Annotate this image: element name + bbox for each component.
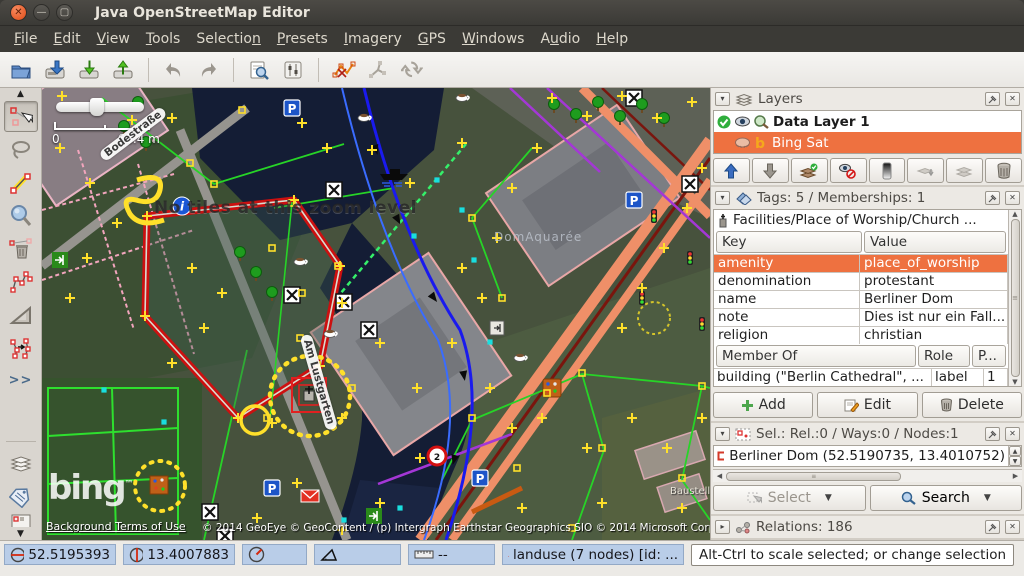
layers-panel: ▾ Layers ✕ Data Layer 1 b Bing Sat — [711, 88, 1024, 187]
layer-row-bing-sat[interactable]: b Bing Sat — [714, 132, 1021, 153]
tool-draw-node[interactable] — [4, 167, 38, 198]
selection-hscrollbar[interactable]: ◀ ≡ ▶ — [713, 469, 1022, 482]
tools-scroll-down-icon[interactable]: ▼ — [3, 528, 39, 540]
terms-of-use-link[interactable]: Background Terms of Use — [46, 520, 186, 533]
relations-panel: ▸ Relations: 186 ✕ — [711, 516, 1024, 540]
member-of-column-header[interactable]: Member Of — [716, 345, 916, 367]
menu-tools[interactable]: Tools — [138, 28, 189, 50]
svg-text:2: 2 — [434, 453, 440, 463]
key-column-header[interactable]: Key — [716, 231, 862, 253]
right-dock: ▾ Layers ✕ Data Layer 1 b Bing Sat — [710, 88, 1024, 540]
object-cursor-icon — [508, 547, 509, 562]
compass-icon — [248, 546, 265, 563]
active-layer-check-icon — [717, 115, 731, 129]
selection-panel-title: Sel.: Rel.:0 / Ways:0 / Nodes:1 — [756, 426, 980, 442]
relations-close-icon[interactable]: ✕ — [1005, 520, 1020, 534]
hovered-object-field: landuse (7 nodes) [id: ... — [502, 544, 684, 565]
scale-zero: 0 — [52, 132, 60, 146]
activate-layer-icon[interactable] — [791, 158, 828, 183]
layer-name: Data Layer 1 — [773, 114, 870, 130]
save-icon[interactable] — [40, 56, 70, 84]
menu-gps[interactable]: GPS — [410, 28, 454, 50]
value-column-header[interactable]: Value — [864, 231, 1006, 253]
tag-row[interactable]: nameBerliner Dom — [714, 290, 1008, 308]
edit-tag-button[interactable]: Edit — [817, 392, 917, 418]
imagery-copyright: © 2014 GeoEye © GeoContent / (p) Intergr… — [202, 522, 710, 534]
layers-collapse-icon[interactable]: ▾ — [715, 92, 730, 106]
undo-icon[interactable] — [159, 56, 189, 84]
relations-expand-icon[interactable]: ▸ — [715, 520, 730, 534]
upload-icon[interactable] — [108, 56, 138, 84]
duplicate-layer-icon[interactable] — [946, 158, 983, 183]
construction-label: Baustelle — [670, 486, 710, 497]
select-button[interactable]: Select ▼ — [713, 485, 866, 511]
add-tag-button[interactable]: Add — [713, 392, 813, 418]
split-way-icon[interactable] — [363, 56, 393, 84]
delete-layer-icon[interactable] — [985, 158, 1022, 183]
tools-more-button[interactable]: >> — [4, 365, 38, 396]
tools-scroll-up-icon[interactable]: ▲ — [3, 88, 39, 100]
tags-panel-title: Tags: 5 / Memberships: 1 — [757, 190, 980, 206]
menu-imagery[interactable]: Imagery — [336, 28, 410, 50]
translucent-eye-icon[interactable] — [735, 137, 750, 148]
bing-layer-icon: b — [754, 136, 768, 150]
selection-icon — [735, 428, 751, 441]
tags-scrollbar[interactable]: ▲ ≡ ▼ — [1008, 210, 1021, 386]
status-bar: 52.5195393 13.4007883 -- landuse (7 node… — [0, 540, 1024, 576]
relations-pin-icon[interactable] — [985, 520, 1000, 534]
search-dropdown-caret[interactable]: ▼ — [984, 493, 991, 503]
latitude-field: 52.5195393 — [4, 544, 116, 565]
tag-row[interactable]: denominationprotestant — [714, 272, 1008, 290]
tool-zoom[interactable] — [4, 200, 38, 231]
search-magnifier-icon — [901, 491, 916, 505]
selection-list-item[interactable]: Berliner Dom (52.5190735, 13.4010752) — [714, 446, 1008, 466]
close-window-icon[interactable]: ✕ — [10, 4, 27, 21]
tags-close-icon[interactable]: ✕ — [1005, 191, 1020, 205]
menu-presets[interactable]: Presets — [269, 28, 336, 50]
layer-name: Bing Sat — [772, 135, 829, 151]
download-icon[interactable] — [74, 56, 104, 84]
merge-ways-icon[interactable] — [329, 56, 359, 84]
preferences-icon[interactable] — [278, 56, 308, 84]
menu-view[interactable]: View — [89, 28, 138, 50]
main-toolbar — [0, 52, 1024, 88]
role-column-header[interactable]: Role — [918, 345, 970, 367]
tool-improve-accuracy[interactable] — [4, 332, 38, 363]
tags-pin-icon[interactable] — [985, 191, 1000, 205]
church-preset-icon — [717, 213, 729, 228]
selection-panel: ▾ Sel.: Rel.:0 / Ways:0 / Nodes:1 ✕ Berl… — [711, 423, 1024, 516]
selection-spinner[interactable]: ▲▼ — [1008, 446, 1021, 466]
edit-tools-sidebar: ▲ >> ▼ — [0, 88, 42, 540]
layers-icon — [735, 92, 753, 106]
menu-bar: File Edit View Tools Selection Presets I… — [0, 26, 1024, 52]
open-icon[interactable] — [6, 56, 36, 84]
tags-collapse-icon[interactable]: ▾ — [715, 191, 730, 205]
tags-panel: ▾ Tags: 5 / Memberships: 1 ✕ Facilities/… — [711, 187, 1024, 423]
menu-help[interactable]: Help — [588, 28, 636, 50]
delete-tag-button[interactable]: Delete — [922, 392, 1022, 418]
edit-pencil-icon — [844, 398, 859, 412]
tag-row[interactable]: noteDies ist nur ein Fall... — [714, 308, 1008, 326]
tags-icon — [735, 192, 752, 205]
select-dropdown-caret[interactable]: ▼ — [825, 493, 832, 503]
tool-select[interactable] — [4, 101, 38, 132]
selection-pin-icon[interactable] — [985, 427, 1000, 441]
redo-icon[interactable] — [193, 56, 223, 84]
merge-layer-icon[interactable] — [907, 158, 944, 183]
visible-eye-icon[interactable] — [735, 116, 750, 127]
latitude-icon — [10, 547, 24, 563]
layers-close-icon[interactable]: ✕ — [1005, 92, 1020, 106]
show-hide-icon[interactable] — [830, 158, 867, 183]
node-marker-icon — [717, 451, 724, 461]
selection-close-icon[interactable]: ✕ — [1005, 427, 1020, 441]
toggle-layers-panel-button[interactable] — [4, 447, 38, 478]
tag-row[interactable]: religionchristian — [714, 326, 1008, 344]
title-bar: ✕ — ▢ Java OpenStreetMap Editor — [0, 0, 1024, 26]
plus-icon — [741, 399, 754, 412]
menu-edit[interactable]: Edit — [45, 28, 88, 50]
map-canvas[interactable]: P — [42, 88, 710, 540]
tool-lasso[interactable] — [4, 134, 38, 165]
tool-delete[interactable] — [4, 233, 38, 264]
longitude-field: 13.4007883 — [123, 544, 235, 565]
relations-panel-title: Relations: 186 — [756, 519, 980, 535]
map-zoom-slider[interactable] — [56, 102, 144, 112]
menu-selection[interactable]: Selection — [188, 28, 269, 50]
status-help-message: Alt-Ctrl to scale selected; or change se… — [691, 544, 1014, 566]
angle-icon — [320, 548, 338, 562]
angle-field — [314, 544, 401, 565]
toggle-tags-panel-button[interactable] — [4, 480, 38, 511]
menu-file[interactable]: File — [6, 28, 45, 50]
layers-panel-title: Layers — [758, 91, 980, 107]
tag-row[interactable]: amenityplace_of_worship — [714, 254, 1008, 272]
layer-row-data-layer[interactable]: Data Layer 1 — [714, 111, 1021, 132]
tool-parallel-way[interactable] — [4, 266, 38, 297]
toggle-selection-panel-button[interactable] — [4, 513, 38, 527]
menu-windows[interactable]: Windows — [454, 28, 533, 50]
map-view[interactable]: P — [42, 88, 710, 540]
selection-collapse-icon[interactable]: ▾ — [715, 427, 730, 441]
window-title: Java OpenStreetMap Editor — [95, 5, 310, 21]
tags-table: amenityplace_of_worship denominationprot… — [714, 254, 1008, 344]
position-column-header[interactable]: P... — [972, 345, 1006, 367]
area-label: DomAquarée — [494, 230, 582, 244]
layer-up-icon[interactable] — [713, 158, 750, 183]
zoom-slider-handle[interactable] — [90, 98, 104, 116]
maximize-window-icon[interactable]: ▢ — [56, 4, 73, 21]
distance-field: -- — [408, 544, 495, 565]
layers-pin-icon[interactable] — [985, 92, 1000, 106]
longitude-icon — [129, 547, 143, 563]
heading-field — [242, 544, 307, 565]
ruler-icon — [414, 549, 434, 560]
minimize-window-icon[interactable]: — — [33, 4, 50, 21]
no-tiles-message: No tiles at this zoom level — [154, 198, 417, 218]
preset-label: Facilities/Place of Worship/Church ... — [733, 212, 977, 228]
bing-logo: bing™ — [48, 468, 134, 508]
membership-row[interactable]: building ("Berlin Cathedral", ... label … — [714, 368, 1008, 386]
preset-row[interactable]: Facilities/Place of Worship/Church ... — [714, 210, 1008, 230]
select-cursor-icon — [747, 492, 762, 505]
menu-audio[interactable]: Audio — [532, 28, 588, 50]
search-preset-icon[interactable] — [244, 56, 274, 84]
tool-extrude[interactable] — [4, 299, 38, 330]
relations-icon — [735, 521, 751, 534]
search-button[interactable]: Search ▼ — [870, 485, 1023, 511]
refresh-icon[interactable] — [397, 56, 427, 84]
trash-icon — [940, 398, 953, 412]
data-layer-icon — [754, 115, 769, 129]
svg-text:b: b — [755, 136, 765, 150]
opacity-icon[interactable] — [869, 158, 906, 183]
layer-down-icon[interactable] — [752, 158, 789, 183]
